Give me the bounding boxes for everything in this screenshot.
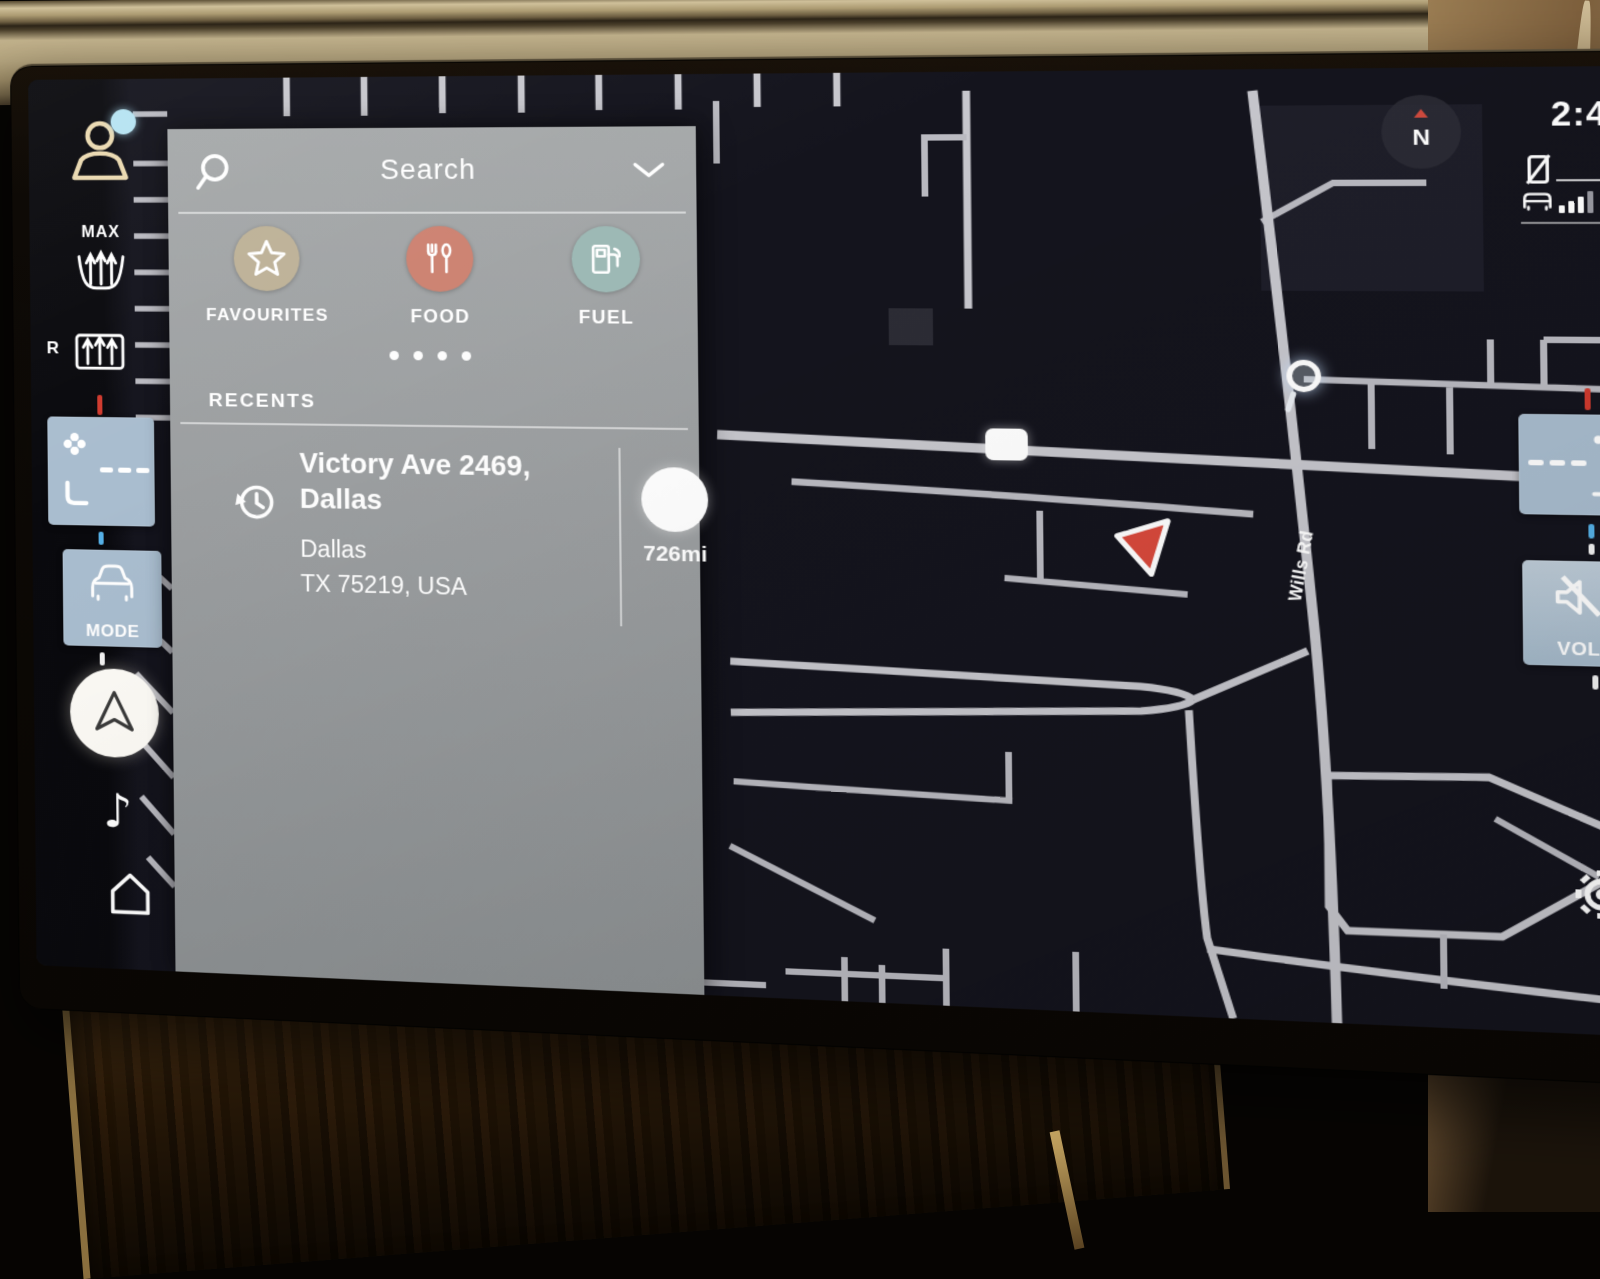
- left-climate-slider-tick: [97, 395, 102, 415]
- max-defrost-label: MAX: [81, 224, 120, 241]
- display-area: Wills Rd MAX: [28, 66, 1600, 1038]
- clock-history-icon: [230, 475, 282, 527]
- fan-icon: [59, 429, 89, 460]
- vehicle-arrow-marker: [1108, 514, 1182, 586]
- distance-button[interactable]: [641, 467, 708, 533]
- mode-button[interactable]: MODE: [63, 549, 163, 648]
- slider-segment[interactable]: [99, 532, 104, 545]
- divider: [178, 212, 685, 214]
- car-connectivity-icon: [1521, 187, 1555, 213]
- divider-vertical: [618, 448, 621, 626]
- slider-segment[interactable]: [1592, 675, 1598, 689]
- rear-defrost-label: R: [47, 338, 59, 358]
- utensils-icon: [419, 239, 461, 278]
- right-climate-slider-tick: [1585, 388, 1591, 410]
- recents-heading: RECENTS: [209, 390, 317, 413]
- recent-destination-item[interactable]: Victory Ave 2469, Dallas Dallas TX 75219…: [170, 432, 701, 647]
- signal-bars-icon: [1559, 189, 1600, 213]
- fan-icon: [1590, 425, 1600, 454]
- infotainment-screen: Wills Rd MAX: [10, 48, 1600, 1088]
- seat-icon: [1590, 471, 1600, 500]
- car-icon: [84, 557, 141, 604]
- search-panel: Search FAVOURITES: [167, 126, 704, 995]
- destination-region: TX 75219, USA: [300, 570, 467, 601]
- home-button[interactable]: [104, 866, 157, 928]
- destination-title: Victory Ave 2469, Dallas: [299, 446, 615, 523]
- search-title: Search: [168, 153, 697, 186]
- home-icon: [104, 866, 157, 923]
- compass-label: N: [1381, 125, 1461, 151]
- chevron-down-icon[interactable]: [629, 160, 668, 181]
- climate-level-dashes: [47, 416, 154, 417]
- seat-icon: [60, 479, 90, 510]
- category-label: FUEL: [532, 307, 682, 330]
- volume-label: VOL: [1523, 638, 1600, 663]
- poi-circle-marker: [1286, 360, 1321, 393]
- category-label: FOOD: [367, 306, 514, 328]
- notification-dot: [111, 109, 136, 134]
- slider-segment[interactable]: [1588, 524, 1594, 538]
- slider-segment[interactable]: [1589, 544, 1595, 555]
- category-label: FAVOURITES: [195, 305, 339, 326]
- left-seat-climate-button[interactable]: [47, 416, 155, 526]
- destination-city: Dallas: [300, 535, 366, 564]
- speaker-mute-icon: [1547, 567, 1600, 625]
- compass-north-caret: [1413, 108, 1430, 119]
- music-note-icon[interactable]: ♪: [103, 783, 133, 838]
- rear-defrost-icon: [68, 326, 131, 375]
- road-sign-marker: [985, 428, 1028, 460]
- max-defrost-button[interactable]: MAX: [65, 224, 136, 298]
- favourites-button[interactable]: FAVOURITES: [195, 226, 340, 326]
- rear-defrost-button[interactable]: R: [46, 326, 147, 380]
- climate-level-dashes: [1518, 414, 1600, 415]
- volume-mute-button[interactable]: VOL: [1522, 560, 1600, 667]
- clock: 2:44: [1482, 94, 1600, 134]
- distance-label: 726mi: [626, 541, 725, 568]
- gear-icon: [1573, 867, 1600, 922]
- divider: [180, 422, 688, 430]
- food-button[interactable]: FOOD: [366, 226, 514, 328]
- settings-button[interactable]: [1573, 867, 1600, 922]
- pagination-dots[interactable]: [169, 345, 698, 368]
- profile-button[interactable]: [64, 115, 139, 204]
- status-divider: [1521, 222, 1600, 224]
- map-building: [889, 308, 934, 345]
- front-defrost-icon: [71, 242, 132, 292]
- status-divider: [1556, 179, 1600, 181]
- mode-label: MODE: [63, 620, 162, 643]
- star-icon: [245, 237, 289, 280]
- compass-button[interactable]: N: [1381, 95, 1461, 169]
- phone-disabled-icon: [1525, 154, 1551, 185]
- search-header[interactable]: Search: [167, 126, 696, 212]
- right-seat-climate-button[interactable]: [1518, 414, 1600, 516]
- fuel-pump-icon: [584, 240, 627, 279]
- nav-arrow-icon: [82, 680, 147, 746]
- slider-segment[interactable]: [100, 652, 105, 665]
- fuel-button[interactable]: FUEL: [531, 226, 682, 329]
